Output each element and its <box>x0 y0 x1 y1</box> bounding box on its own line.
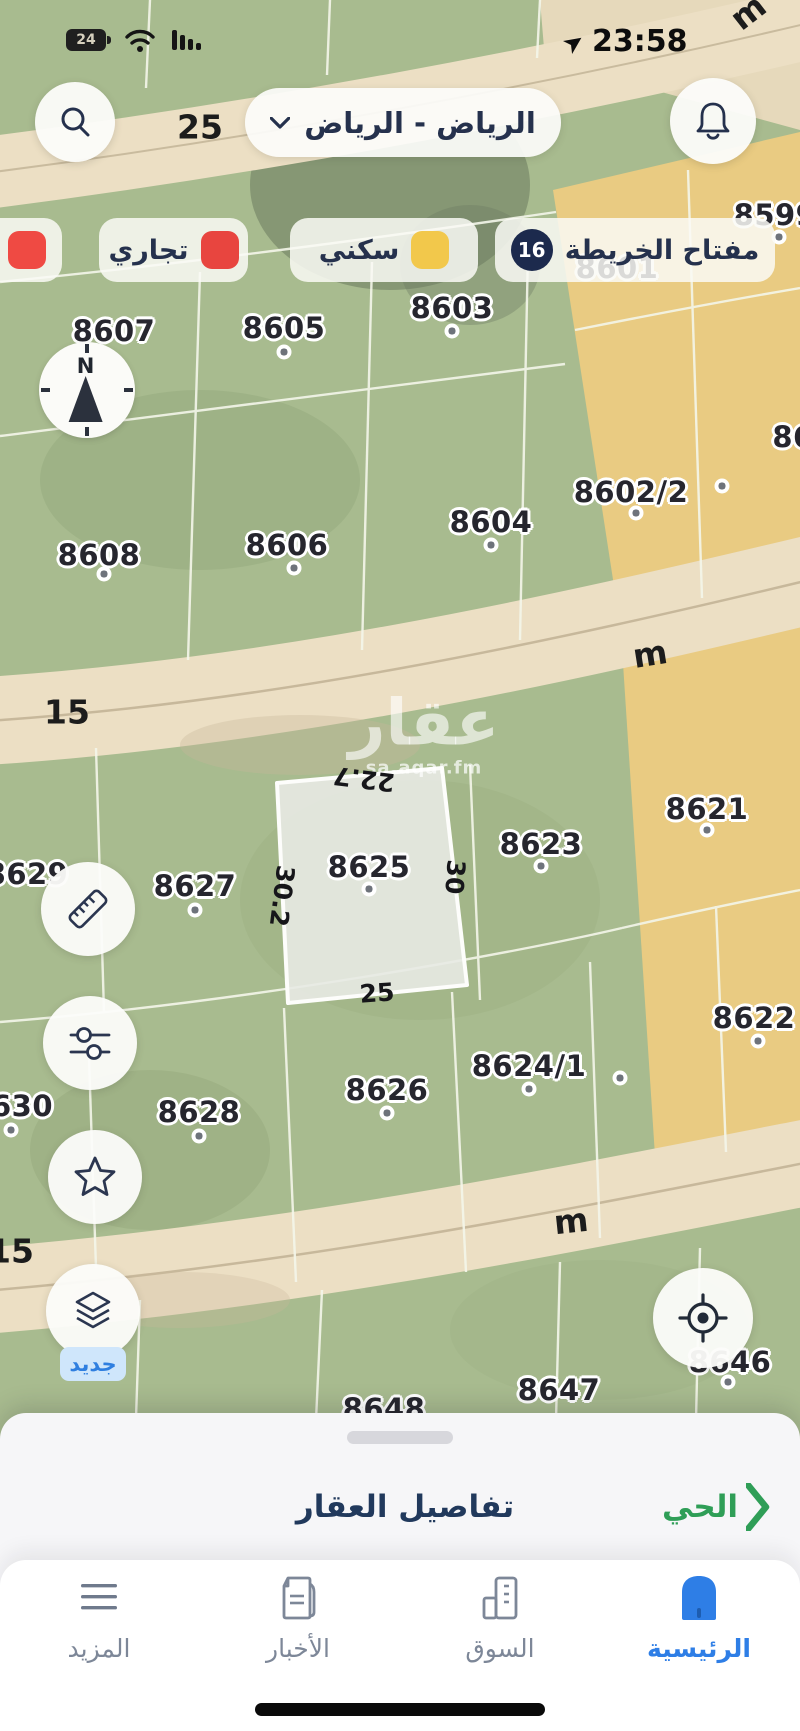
parcel-dot <box>192 1129 207 1144</box>
parcel-dot <box>751 1034 766 1049</box>
parcel-label[interactable]: 8628 <box>158 1095 241 1129</box>
notifications-button[interactable] <box>670 78 756 164</box>
parcel-dot <box>188 903 203 918</box>
nav-market-label: السوق <box>465 1634 534 1663</box>
bell-icon <box>693 100 733 142</box>
parcel-dot <box>277 345 292 360</box>
dimension-label-bottom: 25 <box>359 977 396 1008</box>
street-label: m <box>552 1200 590 1242</box>
parcel-label[interactable]: 8605 <box>243 311 326 345</box>
chevron-down-icon <box>270 117 290 129</box>
bottom-nav: الرئيسية السوق الأخبار <box>0 1560 800 1731</box>
parcel-label[interactable]: 8627 <box>154 869 237 903</box>
parcel-dot <box>613 1071 628 1086</box>
legend-color-swatch <box>8 231 46 269</box>
favorites-button[interactable] <box>48 1130 142 1224</box>
legend-commercial-label: تجاري <box>108 235 188 266</box>
region-selector[interactable]: الرياض - الرياض <box>245 88 561 157</box>
dimension-label-right: 30 <box>439 859 470 896</box>
street-label: 15 <box>0 1232 34 1271</box>
battery-icon: 24 <box>66 29 106 51</box>
residential-color-swatch <box>411 231 449 269</box>
street-label: 15 <box>44 693 90 732</box>
location-arrow-icon: ➤ <box>557 25 591 61</box>
parcel-dot <box>287 561 302 576</box>
parcel-dot <box>4 1123 19 1138</box>
filters-button[interactable] <box>43 996 137 1090</box>
watermark-title: عقار <box>349 692 500 756</box>
signal-bars-icon <box>172 26 206 50</box>
parcel-dot <box>715 479 730 494</box>
status-bar: 24 ➤ 23:58 <box>0 0 800 64</box>
nav-home-label: الرئيسية <box>647 1634 751 1663</box>
nav-item-market[interactable]: السوق <box>425 1574 575 1663</box>
clock-time: 23:58 <box>592 24 688 59</box>
parcel-label[interactable]: 630 <box>0 1089 53 1123</box>
parcel-dot <box>380 1106 395 1121</box>
parcel-dot <box>534 859 549 874</box>
property-details-title: تفاصيل العقار <box>296 1489 514 1525</box>
crosshair-icon <box>676 1291 730 1345</box>
map-key-count-badge: 16 <box>511 229 553 271</box>
parcel-label[interactable]: 8606 <box>246 528 329 562</box>
measure-button[interactable] <box>41 862 135 956</box>
compass-north-label: N <box>77 354 95 378</box>
nav-item-more[interactable]: المزيد <box>24 1574 174 1663</box>
parcel-label[interactable]: 8623 <box>500 827 583 861</box>
legend-chip-partial[interactable] <box>0 218 62 282</box>
new-badge: جديد <box>60 1347 126 1381</box>
parcel-label[interactable]: 8624/1 <box>472 1049 586 1083</box>
parcel-dot <box>700 823 715 838</box>
nav-item-news[interactable]: الأخبار <box>223 1574 373 1663</box>
parcel-dot <box>629 506 644 521</box>
wifi-icon <box>124 28 156 54</box>
nav-more-label: المزيد <box>68 1634 131 1663</box>
sliders-icon <box>67 1021 113 1065</box>
map-key-label: مفتاح الخريطة <box>565 235 760 266</box>
parcel-label[interactable]: 8626 <box>346 1073 429 1107</box>
search-button[interactable] <box>35 82 115 162</box>
home-icon <box>674 1574 724 1622</box>
legend-residential-label: سكني <box>319 235 400 266</box>
commercial-color-swatch <box>201 231 239 269</box>
legend-chip-commercial[interactable]: تجاري <box>99 218 248 282</box>
search-icon <box>58 105 92 139</box>
parcel-label[interactable]: 8625 <box>328 850 411 884</box>
parcel-dot <box>445 324 460 339</box>
sheet-drag-handle[interactable] <box>347 1431 453 1444</box>
locate-me-button[interactable] <box>653 1268 753 1368</box>
layers-button[interactable] <box>46 1264 140 1358</box>
map-key-chip[interactable]: 16 مفتاح الخريطة <box>495 218 775 282</box>
star-icon <box>71 1154 119 1200</box>
street-label: 25 <box>177 108 223 147</box>
region-selector-label: الرياض - الرياض <box>304 106 536 140</box>
battery-percent: 24 <box>76 32 95 48</box>
legend-chip-residential[interactable]: سكني <box>290 218 478 282</box>
parcel-label[interactable]: 8604 <box>450 505 533 539</box>
parcel-dot <box>522 1082 537 1097</box>
app-screen: عقار sa.aqar.fm m 25 m 15 m 15 22.7 30.2… <box>0 0 800 1731</box>
parcel-label[interactable]: 8621 <box>666 792 749 826</box>
ruler-icon <box>62 883 114 935</box>
parcel-label[interactable]: 8603 <box>411 291 494 325</box>
layers-icon <box>70 1288 116 1334</box>
nav-item-home[interactable]: الرئيسية <box>624 1574 774 1663</box>
parcel-dot <box>484 538 499 553</box>
nav-news-label: الأخبار <box>266 1634 330 1663</box>
compass[interactable]: N <box>39 342 135 438</box>
parcel-label[interactable]: 8647 <box>518 1373 601 1407</box>
parcel-label[interactable]: 86 <box>772 420 800 454</box>
district-link[interactable]: الحي <box>662 1489 738 1525</box>
parcel-dot <box>362 882 377 897</box>
parcel-dot <box>97 567 112 582</box>
market-icon <box>476 1574 524 1622</box>
parcel-label[interactable]: 8622 <box>713 1001 796 1035</box>
street-label: m <box>630 632 670 676</box>
compass-needle <box>69 376 103 422</box>
menu-icon <box>77 1574 121 1622</box>
chevron-right-icon[interactable] <box>746 1483 770 1531</box>
home-indicator[interactable] <box>255 1703 545 1716</box>
parcel-label[interactable]: 8602/2 <box>574 475 688 509</box>
news-icon <box>274 1574 322 1622</box>
parcel-dot <box>721 1375 736 1390</box>
